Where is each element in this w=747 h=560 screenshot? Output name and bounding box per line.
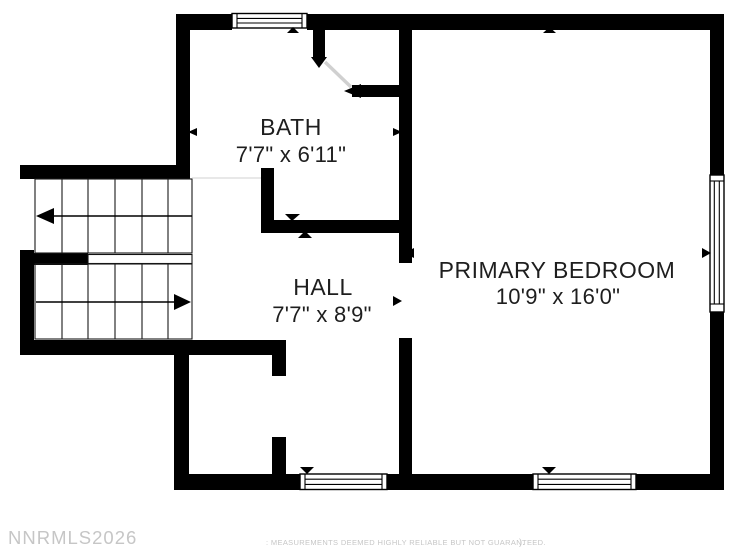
primary-bedroom-label: PRIMARY BEDROOM — [439, 257, 676, 283]
wall-interior-lower — [399, 338, 412, 474]
disclaimer-watermark: : MEASUREMENTS DEEMED HIGHLY RELIABLE BU… — [266, 538, 546, 547]
primary-bedroom-dimensions: 10'9" x 16'0" — [496, 284, 621, 309]
marker-hall-window-icon — [300, 467, 314, 474]
marker-bath-wall-down-icon — [285, 214, 300, 221]
stairs-rail — [88, 255, 192, 264]
floor-plan-page: BATH 7'7" x 6'11" HALL 7'7" x 8'9" PRIMA… — [0, 0, 747, 560]
mls-watermark: NNRMLS2026 — [8, 527, 137, 548]
wall-interior-upper — [399, 26, 412, 263]
floor-plan: BATH 7'7" x 6'11" HALL 7'7" x 8'9" PRIMA… — [0, 0, 747, 560]
stray-watermark-mark: ). — [519, 537, 525, 548]
bath-dimensions: 7'7" x 6'11" — [236, 142, 346, 167]
wall-hall-closet-left — [174, 340, 189, 490]
wall-stair-bottom-closet-top — [20, 340, 286, 355]
wall-top-right-of-window — [307, 14, 724, 30]
wall-bath-bottom — [261, 220, 412, 233]
wall-stair-left — [20, 250, 34, 355]
wall-bottom-right — [636, 474, 724, 490]
stairs-down-arrow-icon — [36, 208, 192, 224]
wall-bottom-left — [176, 474, 300, 490]
hall-label: HALL — [293, 274, 353, 300]
wall-stair-divider — [34, 253, 88, 265]
wall-bath-door-stub — [313, 29, 325, 57]
wall-bottom-middle — [387, 474, 533, 490]
hall-bottom-window-icon — [300, 474, 387, 490]
door-and-measure-markers — [188, 27, 711, 474]
watermarks: NNRMLS2026 : MEASUREMENTS DEEMED HIGHLY … — [8, 527, 546, 548]
bath-top-window-icon — [232, 14, 307, 29]
marker-hall-door-icon — [393, 296, 402, 306]
windows — [232, 14, 724, 490]
walls — [20, 14, 724, 490]
wall-closet-right-lower — [272, 437, 286, 474]
wall-left-upper — [176, 14, 190, 179]
wall-right-lower — [710, 312, 724, 490]
wall-closet-right-upper — [272, 355, 286, 376]
bedroom-bottom-window-icon — [533, 474, 636, 490]
wall-stair-top — [20, 165, 190, 179]
bath-label: BATH — [260, 114, 322, 140]
marker-bedroom-window-icon — [542, 467, 556, 474]
hall-dimensions: 7'7" x 8'9" — [272, 302, 372, 327]
bedroom-right-window-icon — [710, 175, 724, 312]
bath-door-leaf — [325, 62, 351, 87]
wall-right-upper — [710, 14, 724, 175]
